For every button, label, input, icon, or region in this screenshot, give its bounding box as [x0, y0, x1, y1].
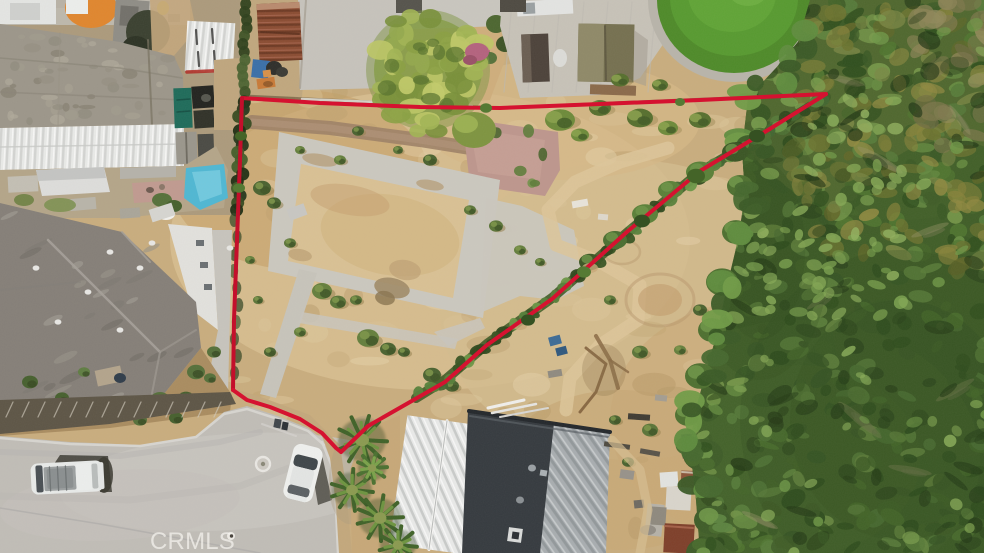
svg-text:CRMLS: CRMLS [150, 528, 235, 553]
